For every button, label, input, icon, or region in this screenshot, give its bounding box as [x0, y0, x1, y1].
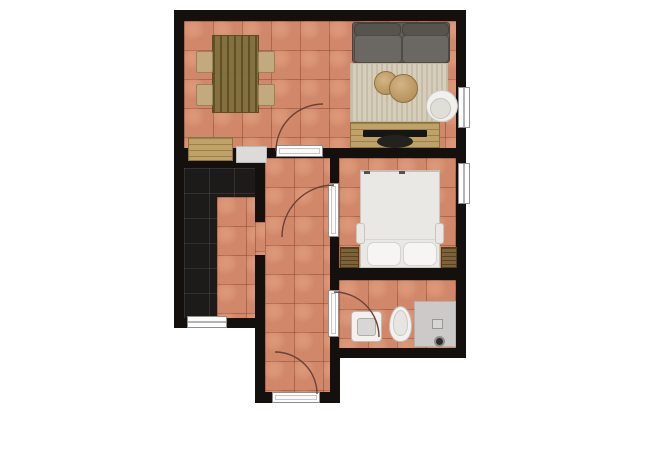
nightstand-right — [441, 247, 457, 268]
living-room-door-leaf — [276, 145, 323, 157]
kitchen-window — [187, 316, 227, 328]
entry-door-leaf — [272, 392, 320, 403]
shower-drain-icon — [434, 336, 445, 347]
tv-base — [377, 135, 413, 148]
hallway-floor — [265, 158, 330, 392]
sofa-cushion-left — [354, 35, 402, 63]
kitchen-appliance — [236, 146, 267, 163]
dining-chair-bottom-left — [196, 84, 213, 106]
bed-bolster-right — [435, 223, 444, 244]
toilet — [389, 306, 412, 342]
bed-pillow-right — [403, 242, 437, 266]
pouf-large — [389, 74, 418, 103]
shower-faucet — [432, 319, 443, 329]
dining-chair-top-left — [196, 51, 213, 73]
sideboard — [188, 137, 233, 161]
toilet-seat — [393, 310, 408, 336]
kitchen-floor-strip — [217, 197, 255, 318]
floor-plan-canvas — [0, 0, 650, 450]
kitchen-doorway-floor — [255, 222, 265, 255]
bed-pillow-left — [367, 242, 401, 266]
dining-table — [212, 35, 259, 113]
bathroom-sink — [351, 311, 382, 342]
dining-chair-top-right — [258, 51, 275, 73]
bathroom-sink-basin — [357, 318, 376, 336]
sofa — [352, 22, 450, 63]
dining-chair-bottom-right — [258, 84, 275, 106]
sofa-cushion-right — [402, 35, 449, 63]
bed-duvet-seam — [361, 239, 439, 240]
bedroom-window — [458, 163, 470, 204]
bedroom-door-leaf — [328, 183, 339, 237]
bathroom-door-leaf — [328, 290, 339, 337]
bed-frame-mark-right — [399, 171, 405, 174]
living-room-window — [458, 87, 470, 128]
round-chair-seat — [430, 98, 451, 119]
round-chair — [426, 90, 458, 122]
bed-bolster-left — [356, 223, 365, 244]
bed-frame-mark-left — [364, 171, 370, 174]
nightstand-left — [340, 247, 359, 268]
